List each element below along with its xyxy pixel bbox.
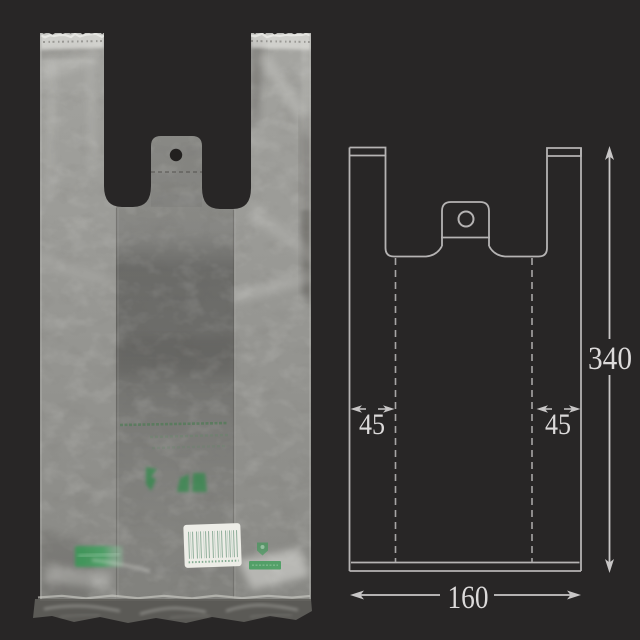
svg-text:45: 45 [359,408,385,441]
svg-text:45: 45 [545,408,571,441]
svg-text:160: 160 [448,580,489,616]
svg-text:340: 340 [588,341,632,377]
